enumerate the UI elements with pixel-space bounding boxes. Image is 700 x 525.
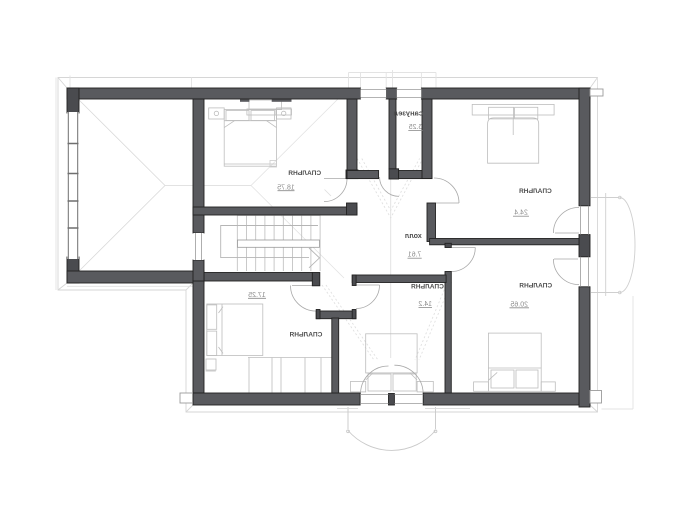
svg-text:18.75: 18.75 — [277, 184, 295, 191]
svg-text:20.65: 20.65 — [510, 301, 528, 308]
svg-text:СПАЛЬНЯ: СПАЛЬНЯ — [288, 170, 321, 177]
svg-text:14.2: 14.2 — [418, 301, 432, 308]
svg-text:СПАЛЬНЯ: СПАЛЬНЯ — [411, 283, 444, 290]
svg-text:СПАЛЬНЯ: СПАЛЬНЯ — [519, 188, 552, 195]
svg-text:СПАЛЬНЯ: СПАЛЬНЯ — [519, 282, 552, 289]
svg-text:холл: холл — [404, 232, 421, 240]
svg-text:17.25: 17.25 — [248, 292, 266, 299]
svg-text:6.25: 6.25 — [409, 124, 423, 131]
svg-text:СПАЛЬНЯ: СПАЛЬНЯ — [289, 332, 322, 339]
svg-text:7.61: 7.61 — [408, 252, 422, 259]
svg-text:24.4: 24.4 — [514, 210, 528, 217]
svg-text:санузел: санузел — [393, 109, 423, 118]
